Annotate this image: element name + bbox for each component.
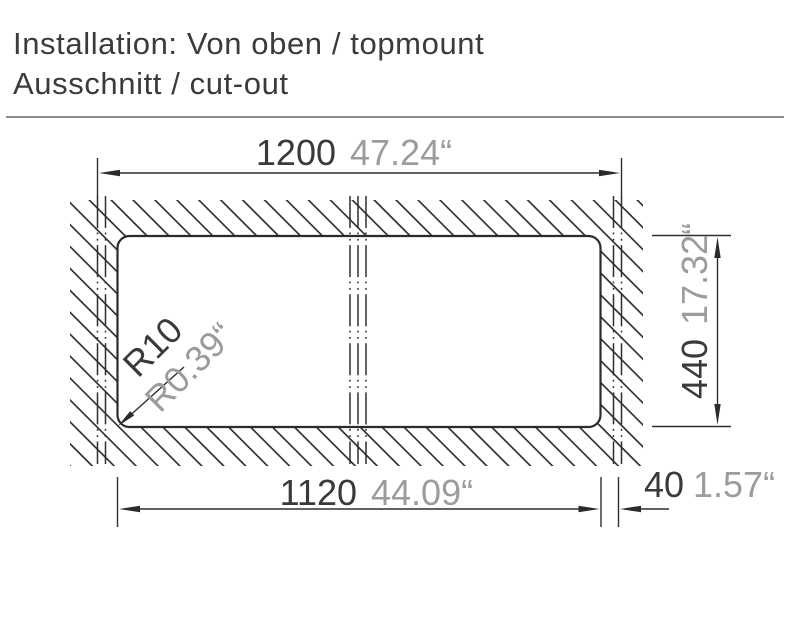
arrowhead-left	[99, 170, 120, 176]
dim-inch-label: 44.09“	[371, 472, 473, 513]
arrowhead-corner	[118, 411, 134, 426]
technical-drawing: 1200 47.24“ 440 17.32“ 1120 44.09“	[0, 0, 790, 640]
dim-inch-label: 17.32“	[674, 223, 715, 325]
arrowhead-down	[714, 404, 720, 425]
cutout-outline	[118, 236, 601, 427]
dim-mm-label: 1120	[280, 472, 357, 513]
arrowhead-right	[579, 506, 600, 512]
dimension-overall-width: 1200 47.24“	[98, 132, 622, 197]
dimension-cutout-height: 440 17.32“	[652, 223, 731, 427]
arrowhead-left	[620, 506, 641, 512]
arrowhead-up	[714, 237, 720, 258]
page-background: Installation: Von oben / topmount Aussch…	[0, 0, 790, 640]
dim-mm-label: 1200	[256, 132, 336, 173]
arrowhead-left	[119, 506, 140, 512]
dimension-cutout-width: 1120 44.09“	[118, 472, 602, 527]
arrowhead-right	[599, 170, 620, 176]
dim-mm-label: 440	[674, 339, 715, 399]
dim-mm-label: 40	[644, 464, 684, 505]
dim-inch-label: 1.57“	[693, 464, 775, 505]
radius-callout: R10 R0.39“	[115, 309, 242, 426]
dimension-rim-offset: 40 1.57“	[619, 464, 776, 527]
dim-inch-label: 47.24“	[350, 132, 452, 173]
